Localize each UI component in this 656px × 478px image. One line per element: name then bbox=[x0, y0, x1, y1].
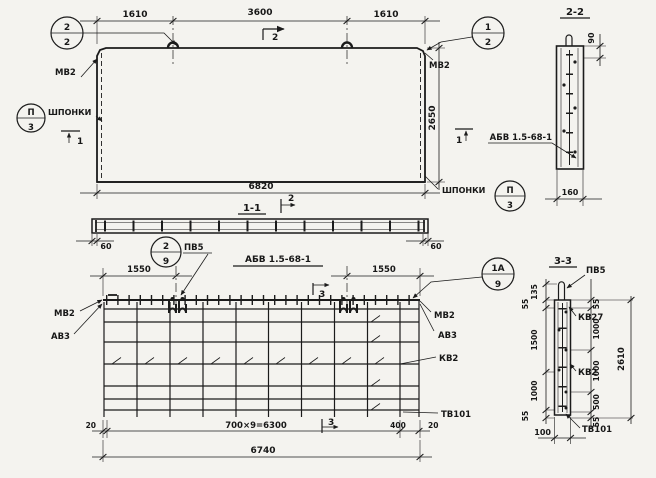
dim-1610-left: 1610 bbox=[122, 10, 147, 20]
dim-1000: 1000 bbox=[592, 319, 601, 340]
cut-3-label: 3 bbox=[328, 418, 334, 428]
label-tv101-plan: ТВ101 bbox=[403, 410, 471, 420]
cut-2-label: 2 bbox=[288, 194, 294, 204]
dim-1610-right: 1610 bbox=[373, 10, 398, 20]
dimension-60-left: 60 bbox=[76, 234, 114, 251]
label-pv5-33: ПВ5 bbox=[567, 266, 606, 288]
section-ref-1-1: 1-1 2 bbox=[238, 194, 295, 214]
cut-3-label: 3 bbox=[319, 290, 325, 300]
callout-bot-text: 2 bbox=[64, 38, 70, 48]
callout-top-text: 1А bbox=[491, 264, 504, 274]
section-cut-2-top-marker: 2 bbox=[263, 29, 284, 43]
mv2-text: МВ2 bbox=[434, 311, 455, 321]
label-mv2-plan-right: МВ2 bbox=[420, 301, 455, 321]
label-series-abv: АБВ 1.5-68-1 bbox=[488, 133, 576, 158]
dim-60: 60 bbox=[430, 242, 442, 251]
dimension-bottom-chain: 20 700×9=6300 400 20 bbox=[86, 420, 439, 438]
dimension-chain-left: 135 55 1500 1000 55 bbox=[521, 279, 557, 424]
dim-20-right: 20 bbox=[428, 421, 438, 430]
dim-500: 500 bbox=[592, 394, 601, 410]
dim-1550: 1550 bbox=[372, 265, 396, 275]
loop-top-icon bbox=[566, 35, 572, 46]
tv101-text: ТВ101 bbox=[441, 410, 471, 420]
callout-bot-text: 9 bbox=[163, 257, 169, 267]
dimension-total: 6740 bbox=[92, 440, 432, 462]
mv2-text: МВ2 bbox=[429, 61, 450, 71]
dim-135: 135 bbox=[530, 284, 539, 300]
callout-top-text: 2 bbox=[64, 23, 70, 33]
strip-body bbox=[92, 219, 428, 233]
cut-1-label: 1 bbox=[456, 136, 462, 146]
callout-top-text: 2 bbox=[163, 242, 169, 252]
kv2-text: КВ2 bbox=[439, 354, 458, 364]
dim-6740: 6740 bbox=[250, 446, 275, 456]
dimension-total-height: 2610 bbox=[617, 296, 634, 424]
dimension-top-chain: 1610 3600 1610 bbox=[80, 8, 440, 44]
label-av3-plan-right: АВ3 bbox=[420, 304, 457, 341]
lifting-loop-icon bbox=[168, 16, 178, 64]
dim-400: 400 bbox=[390, 421, 406, 430]
dim-55: 55 bbox=[521, 411, 530, 421]
section-1-1-view: 60 60 2 9 ПВ5 АБВ 1.5-68-1 bbox=[76, 219, 444, 295]
dim-2650: 2650 bbox=[428, 105, 438, 130]
callout-circle-1a-9: 1А 9 bbox=[413, 258, 514, 298]
av3-text: АВ3 bbox=[438, 331, 457, 341]
dim-55: 55 bbox=[592, 417, 601, 427]
label-mv2-left: МВ2 bbox=[55, 59, 97, 78]
mv2-text: МВ2 bbox=[55, 68, 76, 78]
pv5-text: ПВ5 bbox=[184, 243, 204, 253]
dimension-width: 6820 bbox=[80, 182, 440, 199]
label-mv2-plan-left: МВ2 bbox=[54, 300, 102, 319]
series-title-text: АБВ 1.5-68-1 bbox=[245, 255, 311, 265]
dim-90: 90 bbox=[587, 32, 596, 44]
lifting-loop-icon bbox=[342, 16, 352, 64]
dimension-90: 90 bbox=[583, 32, 606, 66]
section-cut-1-right-marker: 1 bbox=[455, 129, 473, 146]
mv2-text: МВ2 bbox=[54, 309, 75, 319]
section-ref-text: 1-1 bbox=[243, 203, 261, 214]
drawing-sheet: 1610 3600 1610 2 2 2 МВ2 П 3 ШПОНКИ 1 bbox=[0, 0, 656, 478]
dim-55: 55 bbox=[521, 299, 530, 309]
dim-3600: 3600 bbox=[247, 8, 272, 18]
label-keys-left: П 3 ШПОНКИ bbox=[17, 104, 102, 133]
cut-1-label: 1 bbox=[77, 137, 83, 147]
callout-top-text: 1 bbox=[485, 23, 491, 33]
label-tv101-33: ТВ101 bbox=[566, 414, 612, 435]
section-2-2-title: 2-2 bbox=[566, 7, 584, 18]
dim-55: 55 bbox=[592, 299, 601, 309]
dim-60: 60 bbox=[100, 242, 112, 251]
panel-outline bbox=[97, 48, 425, 182]
cut-2-label: 2 bbox=[272, 33, 278, 43]
callout-top-text: П bbox=[506, 186, 513, 196]
callout-bot-text: 3 bbox=[28, 123, 34, 133]
dim-1000: 1000 bbox=[592, 361, 601, 382]
loop-top-icon bbox=[559, 282, 565, 300]
dim-160: 160 bbox=[562, 188, 579, 197]
dim-100: 100 bbox=[534, 428, 551, 437]
dim-1500: 1500 bbox=[530, 330, 539, 351]
section-cut-3-top-marker: 3 bbox=[313, 283, 329, 300]
dimension-160: 160 bbox=[545, 170, 602, 206]
dimension-100: 100 bbox=[534, 417, 586, 444]
pv5-text: ПВ5 bbox=[586, 266, 606, 276]
av3-text: АВ3 bbox=[51, 332, 70, 342]
callout-circle-2-9: 2 9 bbox=[151, 237, 181, 267]
callout-circle-1-2: 1 2 bbox=[427, 17, 504, 50]
dim-1000: 1000 bbox=[530, 381, 539, 402]
section-cut-1-left-marker: 1 bbox=[61, 131, 83, 147]
dimension-60-right: 60 bbox=[406, 234, 444, 251]
callout-circle-2-2: 2 2 bbox=[51, 17, 176, 49]
dim-700x9: 700×9=6300 bbox=[225, 421, 287, 431]
keys-text: ШПОНКИ bbox=[48, 108, 91, 117]
callout-bot-text: 3 bbox=[507, 201, 513, 211]
keys-text: ШПОНКИ bbox=[442, 186, 485, 195]
label-pv5: ПВ5 bbox=[181, 243, 212, 295]
panel-elevation-view: 1610 3600 1610 2 2 2 МВ2 П 3 ШПОНКИ 1 bbox=[17, 8, 525, 214]
dim-2610: 2610 bbox=[617, 347, 627, 371]
series-title: АБВ 1.5-68-1 bbox=[233, 255, 323, 266]
dim-6820: 6820 bbox=[248, 182, 273, 192]
section-3-3-view: 3-3 ПВ5 КВ27 КВ2 ТВ101 135 55 1500 1000 … bbox=[521, 256, 634, 444]
drawing-canvas: 1610 3600 1610 2 2 2 МВ2 П 3 ШПОНКИ 1 bbox=[0, 0, 656, 478]
label-mv2-right: МВ2 bbox=[425, 53, 450, 71]
section-3-3-title: 3-3 bbox=[554, 256, 572, 267]
label-kv2-plan: КВ2 bbox=[400, 354, 458, 364]
callout-bot-text: 9 bbox=[495, 280, 501, 290]
dim-20-left: 20 bbox=[86, 421, 96, 430]
series-text: АБВ 1.5-68-1 bbox=[490, 133, 552, 143]
callout-bot-text: 2 bbox=[485, 38, 491, 48]
section-2-2-view: 2-2 90 АБВ 1.5-68-1 160 bbox=[488, 7, 606, 206]
callout-top-text: П bbox=[27, 108, 34, 118]
reinforcement-plan-view: 1550 1550 3 МВ2 АВ3 МВ2 АВ3 КВ2 ТВ101 bbox=[51, 258, 514, 462]
splice-marks bbox=[112, 316, 384, 411]
dim-1550: 1550 bbox=[127, 265, 151, 275]
